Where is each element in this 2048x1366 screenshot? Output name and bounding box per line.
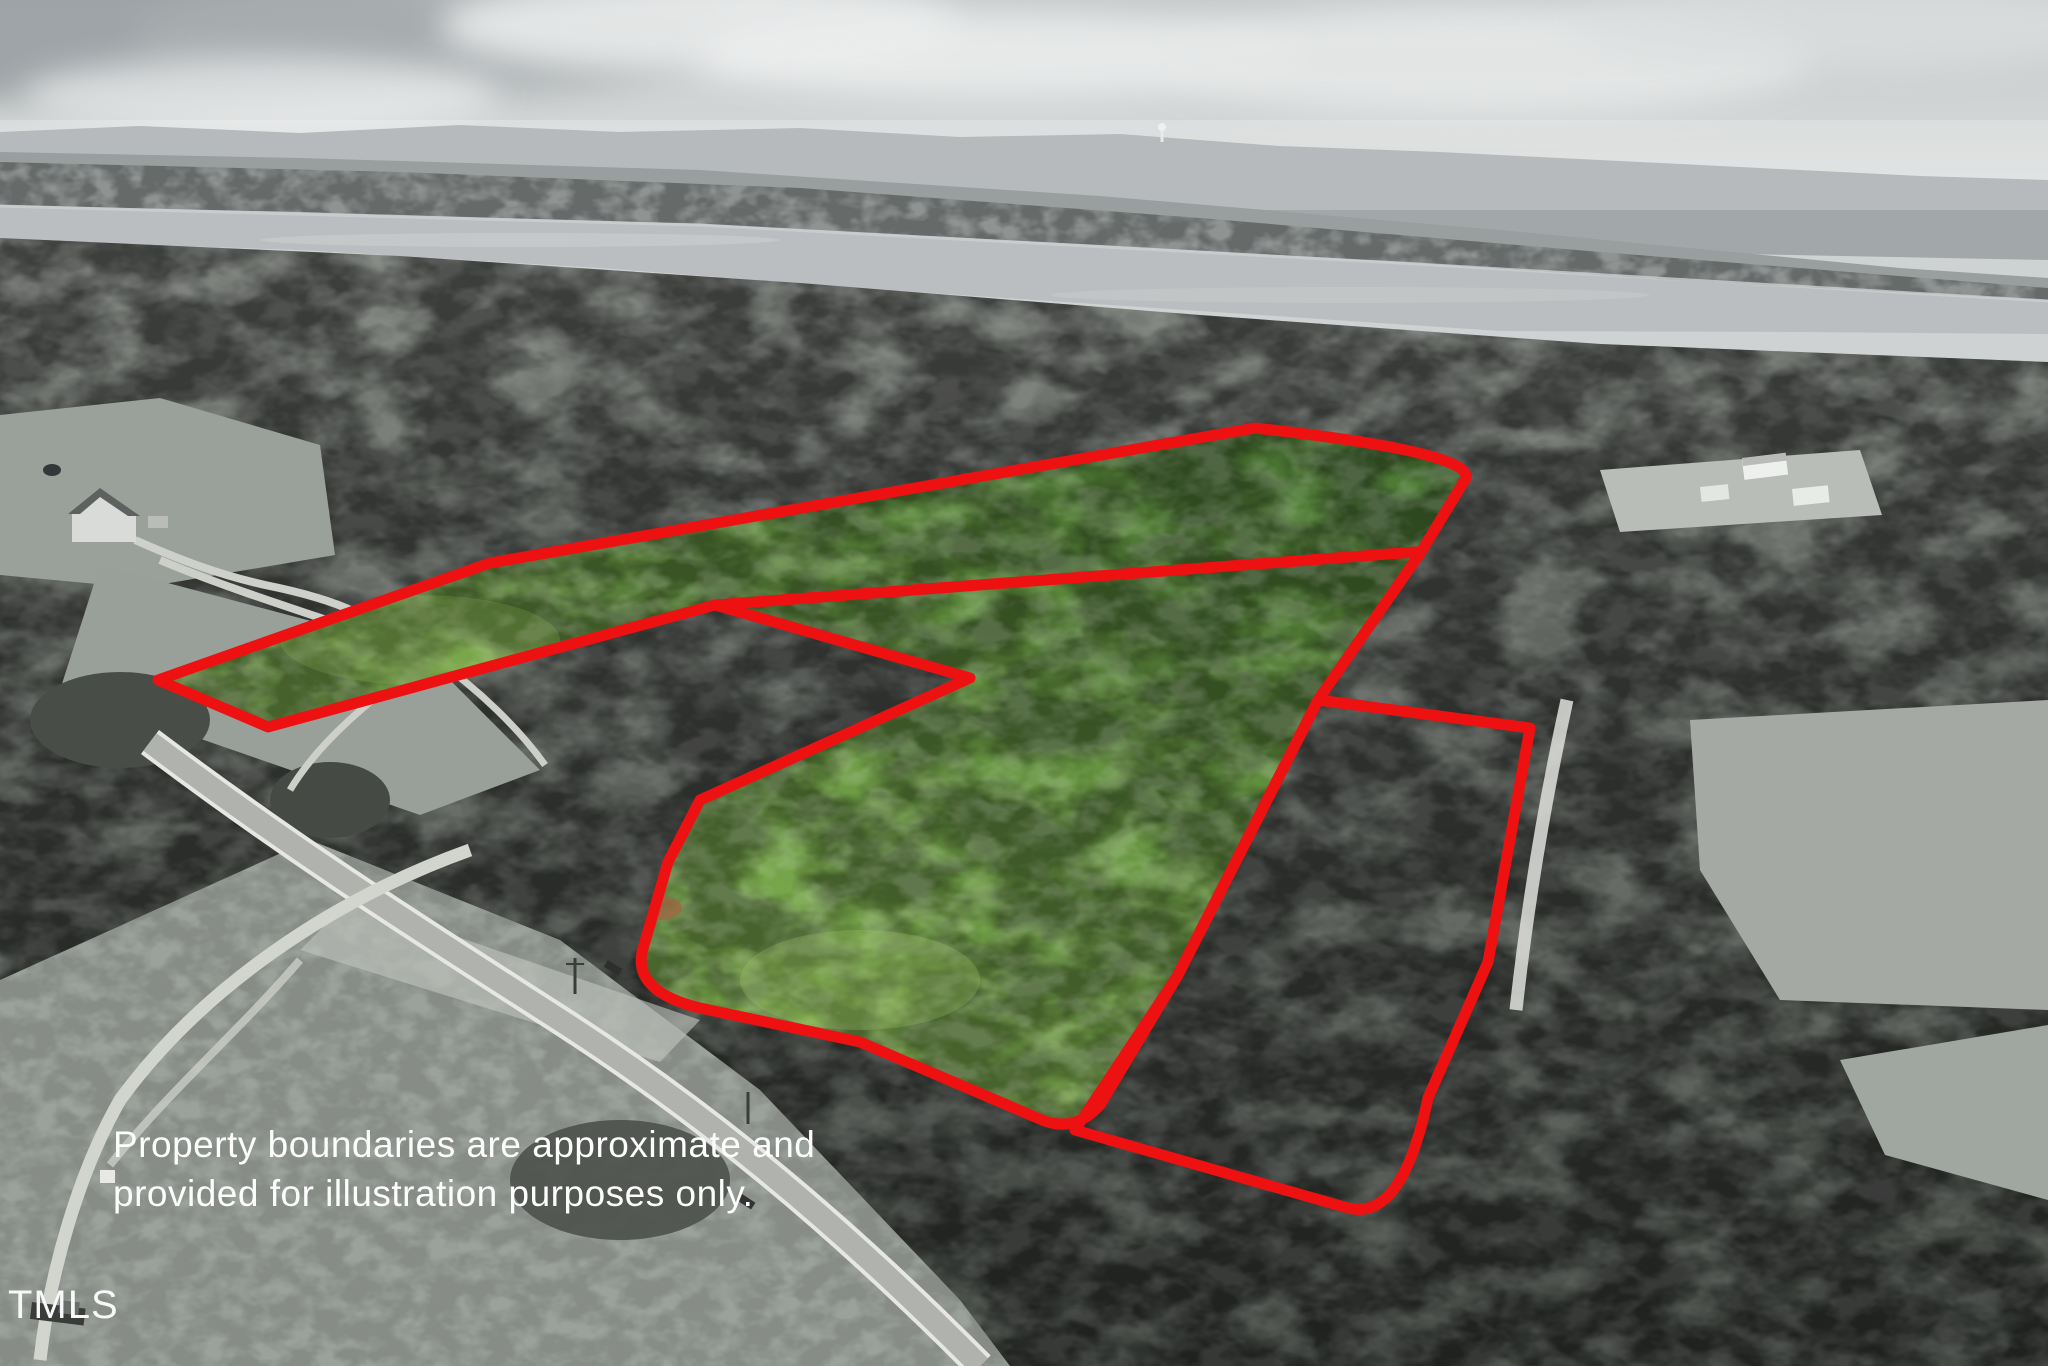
shed: [148, 516, 168, 528]
disclaimer-line2: provided for illustration purposes only.: [113, 1173, 753, 1214]
bright-green-patch: [740, 930, 980, 1030]
lake-sheen: [1050, 287, 1650, 303]
watermark: TMLS: [8, 1283, 119, 1327]
water-tower-tank: [1158, 123, 1166, 131]
aerial-photo: Property boundaries are approximate and …: [0, 0, 2048, 1366]
lake-sheen: [260, 233, 780, 247]
disclaimer-line1: Property boundaries are approximate and: [113, 1124, 815, 1165]
trampoline: [43, 464, 61, 476]
farm-building: [1700, 484, 1729, 502]
